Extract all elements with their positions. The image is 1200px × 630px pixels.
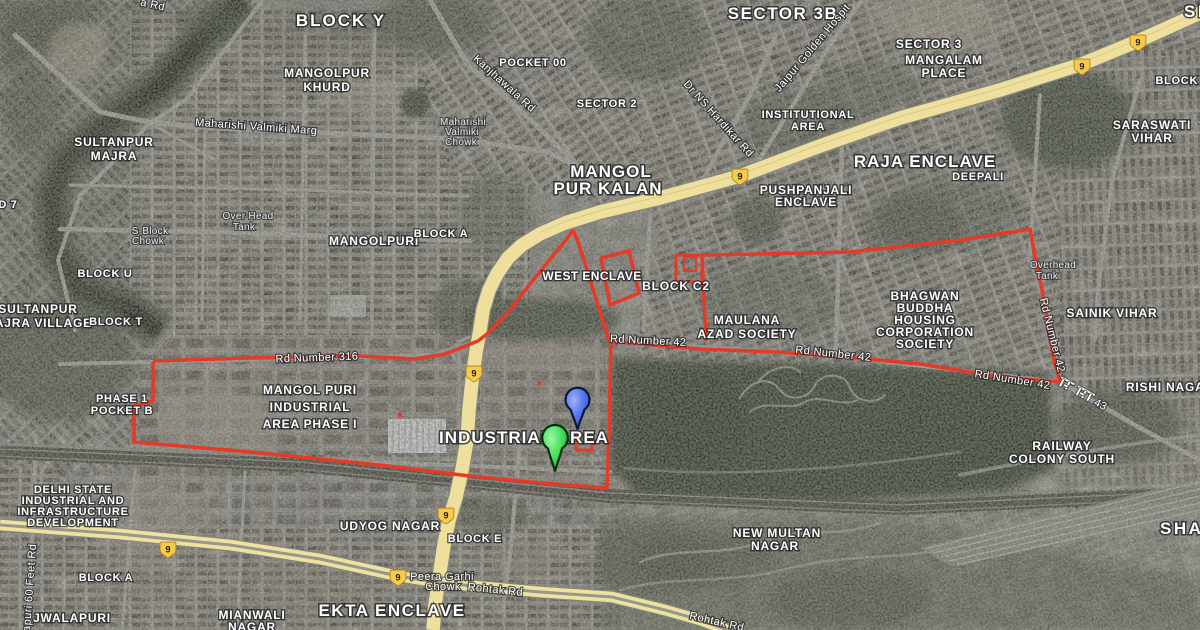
svg-text:SHAKU: SHAKU [1160, 519, 1200, 538]
svg-text:SECTOR 2: SECTOR 2 [577, 98, 637, 110]
svg-text:PUR KALAN: PUR KALAN [553, 179, 662, 198]
svg-text:BLOCK C2: BLOCK C2 [642, 279, 710, 293]
svg-text:AZAD SOCIETY: AZAD SOCIETY [698, 327, 797, 341]
svg-text:MAJRA: MAJRA [91, 149, 138, 163]
svg-text:UDYOG NAGAR: UDYOG NAGAR [340, 519, 440, 533]
svg-text:INDUSTRIAL AREA: INDUSTRIAL AREA [439, 428, 609, 447]
svg-text:Over Head: Over Head [222, 211, 273, 222]
svg-text:9: 9 [471, 368, 476, 378]
svg-text:MANGOL PURI: MANGOL PURI [263, 383, 357, 397]
svg-text:DEEPALI: DEEPALI [952, 171, 1004, 183]
svg-text:Chowk: Chowk [132, 236, 165, 247]
svg-text:SECTOR 3: SECTOR 3 [896, 37, 962, 51]
svg-text:AREA PHASE I: AREA PHASE I [263, 417, 358, 431]
svg-text:INSTITUTIONAL: INSTITUTIONAL [762, 109, 855, 121]
svg-text:9: 9 [1135, 37, 1140, 47]
svg-text:NEW MULTAN: NEW MULTAN [733, 526, 821, 540]
svg-text:Overhead: Overhead [1030, 260, 1076, 271]
svg-text:Tank: Tank [1036, 271, 1059, 282]
svg-text:SHA: SHA [1184, 2, 1200, 21]
svg-text:NAGAR: NAGAR [228, 620, 276, 630]
svg-text:D 7: D 7 [0, 199, 18, 211]
svg-text:MAULANA: MAULANA [714, 313, 780, 327]
svg-text:9: 9 [395, 572, 400, 582]
svg-text:SOCIETY: SOCIETY [896, 337, 954, 351]
svg-text:BLOCK A: BLOCK A [79, 572, 134, 584]
svg-text:RISHI NAGAR: RISHI NAGAR [1126, 380, 1200, 394]
svg-text:SECTOR 3B: SECTOR 3B [728, 4, 839, 23]
svg-text:PLACE: PLACE [922, 66, 967, 80]
svg-text:POCKET 00: POCKET 00 [499, 57, 566, 69]
svg-text:9: 9 [443, 510, 448, 520]
svg-text:KHURD: KHURD [303, 80, 350, 94]
svg-text:SAINIK VIHAR: SAINIK VIHAR [1067, 306, 1158, 320]
svg-text:SARASWATI: SARASWATI [1113, 118, 1191, 132]
svg-text:BLOCK T: BLOCK T [89, 316, 143, 328]
svg-text:MAJRA VILLAGE: MAJRA VILLAGE [0, 316, 92, 330]
svg-text:RAILWAY: RAILWAY [1032, 439, 1091, 453]
svg-text:VIHAR: VIHAR [1131, 131, 1172, 145]
svg-text:BLOCK U: BLOCK U [77, 268, 132, 280]
svg-text:INDUSTRIAL: INDUSTRIAL [270, 400, 351, 414]
svg-text:AREA: AREA [791, 121, 825, 133]
svg-text:JWALAPURI: JWALAPURI [33, 611, 111, 625]
svg-text:DEVELOPMENT: DEVELOPMENT [27, 517, 118, 529]
svg-text:WEST ENCLAVE: WEST ENCLAVE [542, 269, 641, 283]
svg-text:Chowk: Chowk [445, 137, 478, 148]
svg-text:PHASE 1: PHASE 1 [96, 393, 148, 405]
svg-text:BLOCK E: BLOCK E [448, 533, 502, 545]
svg-text:MANGALAM: MANGALAM [905, 53, 983, 67]
svg-text:Chowk: Chowk [425, 581, 461, 593]
svg-text:9: 9 [165, 544, 170, 554]
svg-text:9: 9 [1079, 61, 1084, 71]
svg-text:BLOCK Y: BLOCK Y [296, 11, 386, 30]
svg-text:SULTANPUR: SULTANPUR [0, 302, 78, 316]
svg-text:COLONY SOUTH: COLONY SOUTH [1009, 452, 1115, 466]
svg-text:BLOCK A: BLOCK A [414, 228, 469, 240]
svg-text:Tank: Tank [233, 222, 256, 233]
svg-text:NAGAR: NAGAR [751, 539, 799, 553]
svg-text:BLOCK C: BLOCK C [1155, 75, 1200, 87]
svg-text:ENCLAVE: ENCLAVE [775, 195, 837, 209]
svg-text:RAJA ENCLAVE: RAJA ENCLAVE [854, 152, 996, 171]
svg-text:POCKET B: POCKET B [91, 405, 153, 417]
svg-text:SULTANPUR: SULTANPUR [74, 135, 153, 149]
svg-text:MANGOLPURI: MANGOLPURI [329, 234, 419, 248]
svg-text:9: 9 [737, 171, 742, 181]
svg-text:MANGOLPUR: MANGOLPUR [284, 66, 370, 80]
svg-text:EKTA ENCLAVE: EKTA ENCLAVE [318, 601, 465, 620]
